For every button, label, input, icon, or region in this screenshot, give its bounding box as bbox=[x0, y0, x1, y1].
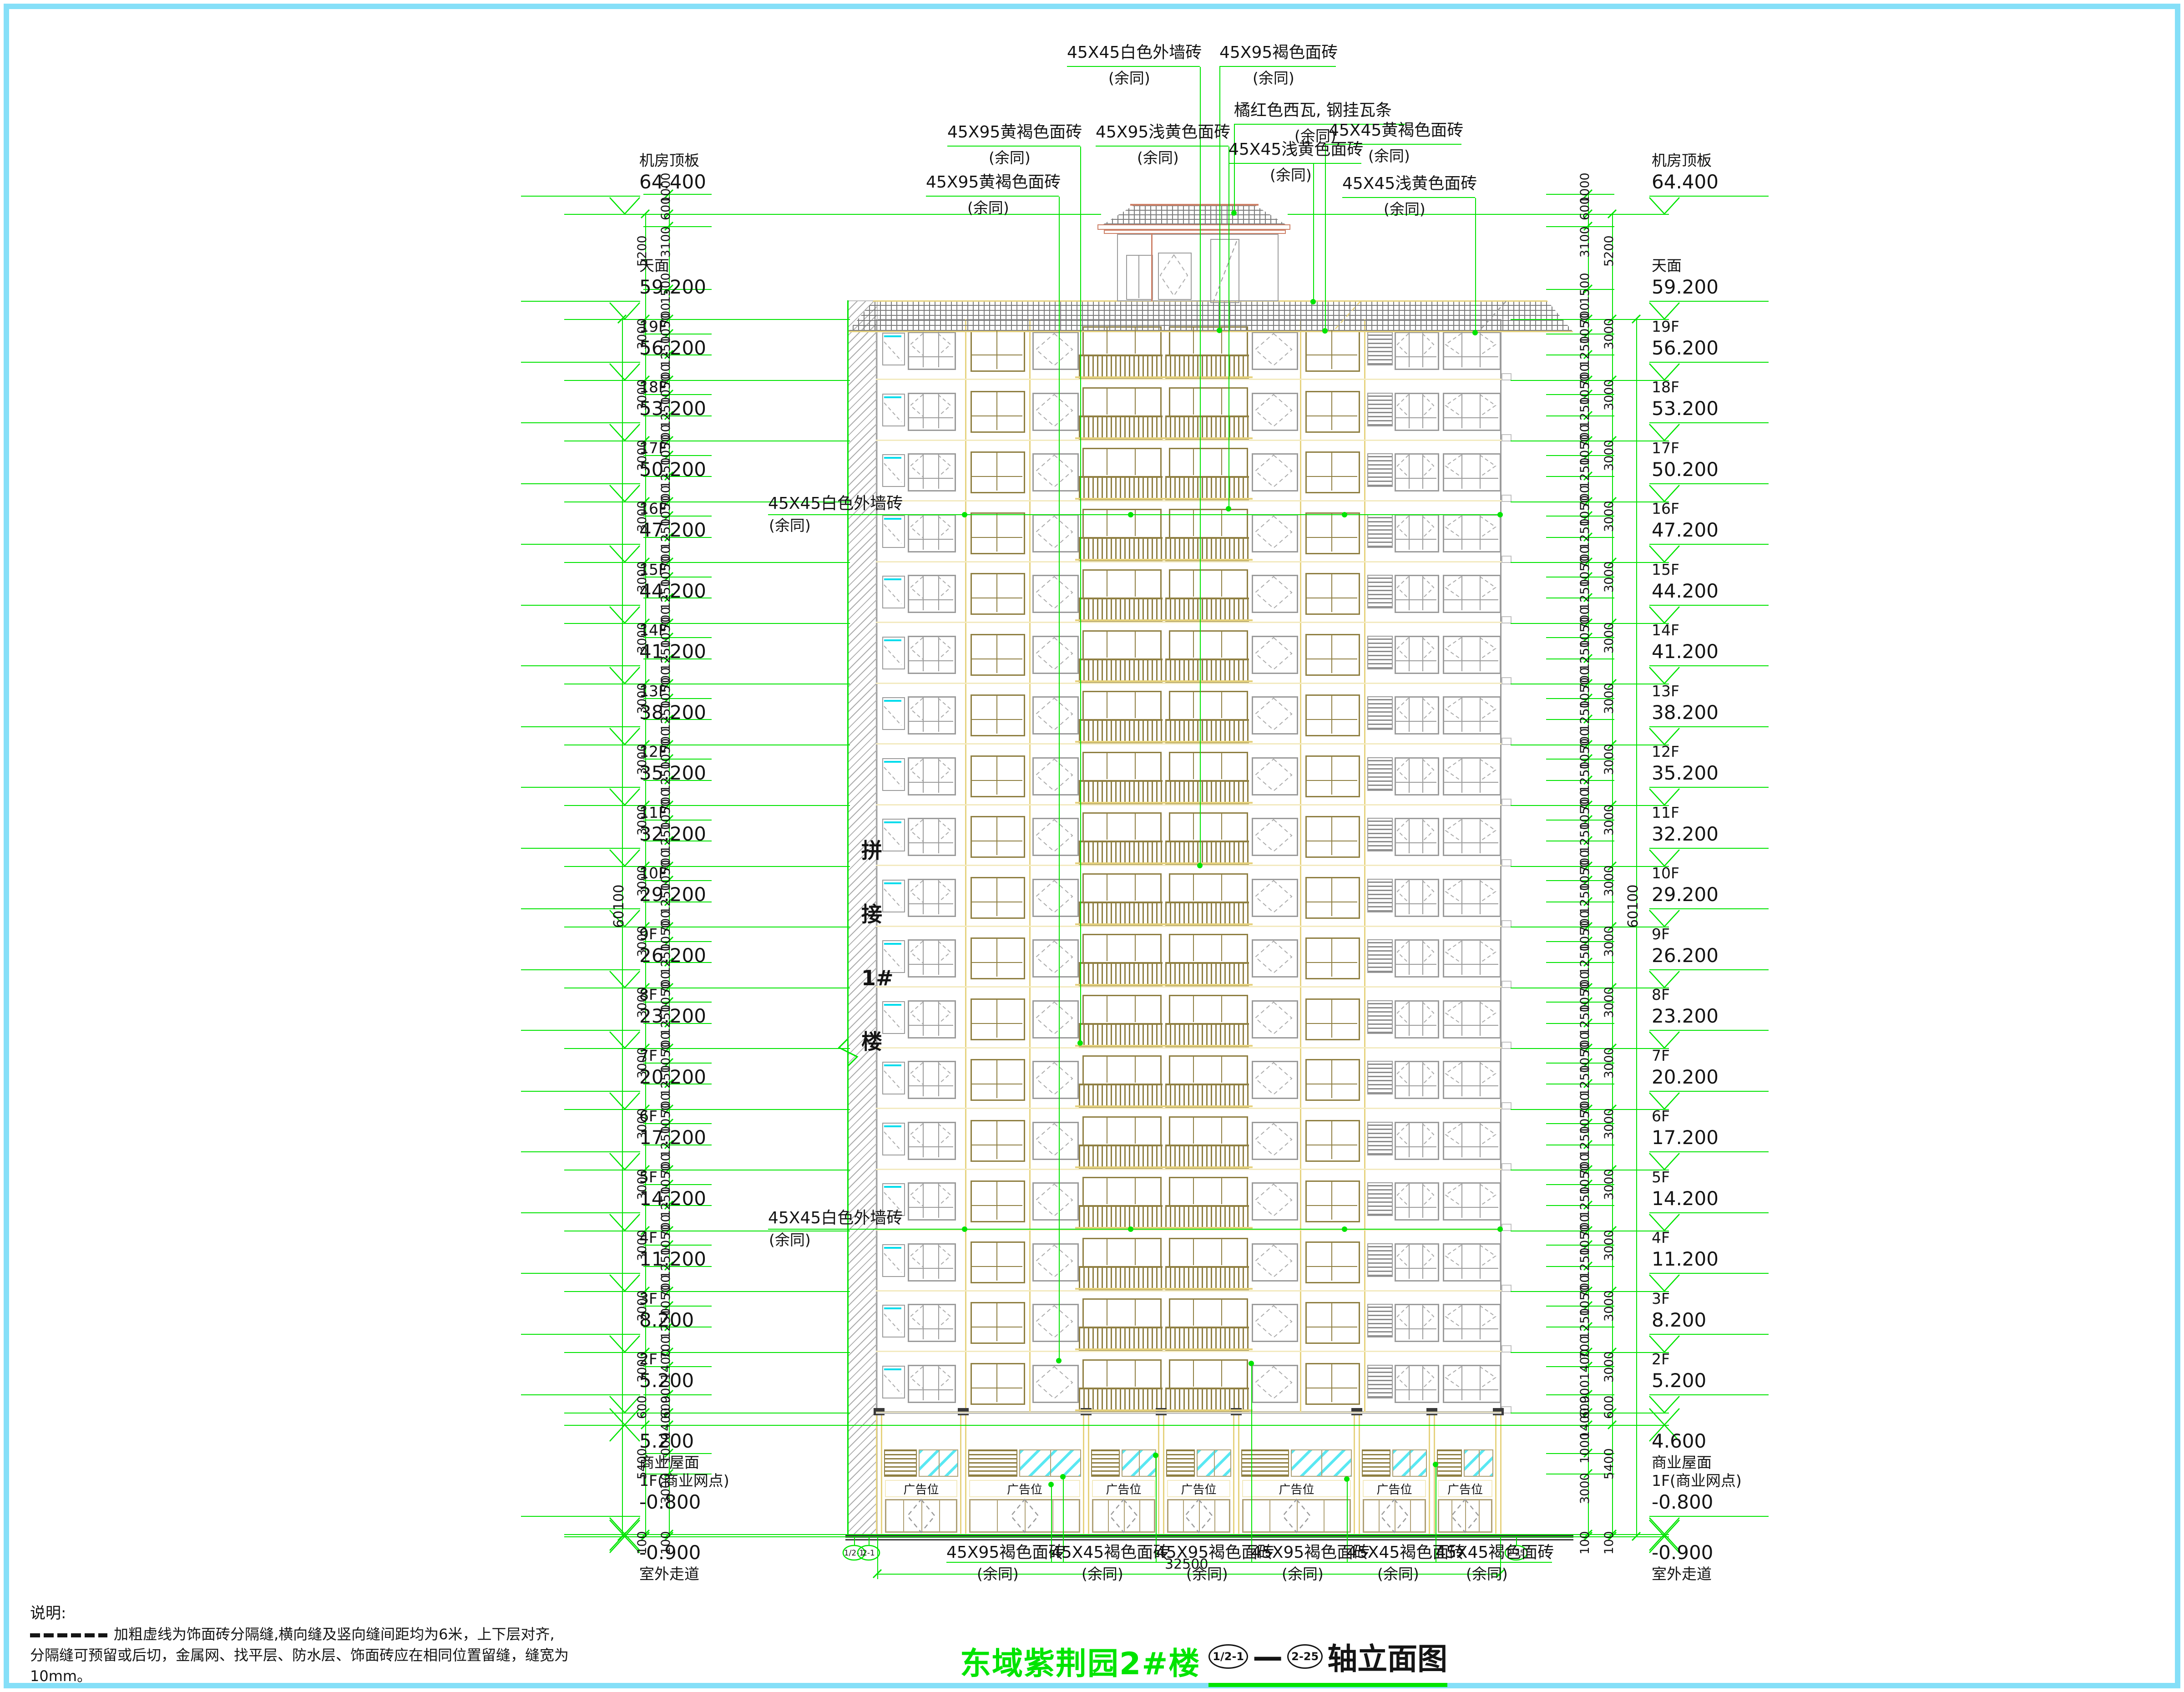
window-3pane bbox=[1443, 1304, 1501, 1342]
window-rail bbox=[971, 902, 1022, 902]
level-line bbox=[564, 214, 1101, 215]
window-olive bbox=[971, 694, 1025, 736]
window-mullion bbox=[1135, 934, 1136, 961]
door-mullion bbox=[1269, 1499, 1270, 1533]
ground-line-thin bbox=[845, 1539, 1573, 1540]
window-diamond bbox=[1252, 1304, 1298, 1342]
window-3pane bbox=[1443, 818, 1501, 856]
level-underline-left bbox=[521, 1516, 640, 1517]
window-mullion bbox=[1409, 1122, 1410, 1157]
penthouse-window-diamond bbox=[1158, 253, 1192, 300]
window-glass-line bbox=[884, 882, 901, 884]
window-mullion bbox=[1422, 1061, 1423, 1096]
window-diamond bbox=[1252, 332, 1298, 370]
balcony-slab bbox=[1162, 559, 1253, 561]
window-mullion bbox=[1193, 1055, 1194, 1083]
window-mullion bbox=[996, 391, 997, 430]
window-rail bbox=[1395, 1085, 1436, 1086]
window-mullion bbox=[1135, 1177, 1136, 1204]
window-glass-line bbox=[884, 761, 901, 763]
window-3pane bbox=[1395, 332, 1439, 370]
facade-ledge bbox=[1501, 434, 1512, 441]
door-mullion bbox=[903, 1499, 904, 1533]
window-mullion bbox=[1193, 630, 1194, 658]
window-rail bbox=[971, 1327, 1022, 1327]
balcony-railing bbox=[1079, 355, 1163, 380]
window-mullion bbox=[1107, 448, 1107, 475]
level-underline-right bbox=[1649, 1151, 1769, 1152]
window-olive bbox=[1305, 998, 1360, 1040]
window-mullion bbox=[1461, 818, 1462, 853]
window-olive bbox=[971, 937, 1025, 979]
window-mullion bbox=[1409, 514, 1410, 550]
window-small bbox=[882, 758, 905, 791]
window-3pane bbox=[1395, 453, 1439, 491]
balcony-slab bbox=[1162, 1288, 1253, 1290]
door-mullion bbox=[1451, 1499, 1452, 1533]
window-mullion bbox=[1221, 1055, 1222, 1083]
window-3pane bbox=[1443, 1243, 1501, 1282]
annotation-underline bbox=[946, 1562, 1063, 1563]
window-mullion bbox=[923, 453, 924, 489]
window-mullion bbox=[1135, 1359, 1136, 1387]
window-mullion bbox=[1480, 879, 1481, 914]
window-mullion bbox=[1461, 1182, 1462, 1218]
window-mullion bbox=[1221, 873, 1222, 901]
level-underline-right bbox=[1649, 848, 1769, 849]
door-mullion bbox=[1465, 1499, 1466, 1533]
window-rail bbox=[971, 1266, 1022, 1267]
window-mullion bbox=[1409, 1365, 1410, 1400]
window-3pane bbox=[1395, 1365, 1439, 1403]
window-rail bbox=[908, 1268, 953, 1269]
window-rail bbox=[1443, 1146, 1498, 1147]
window-mullion bbox=[1107, 812, 1107, 840]
balcony-window bbox=[1082, 630, 1162, 660]
shop-pilaster bbox=[876, 1413, 882, 1534]
annotation-leader bbox=[1059, 197, 1060, 1361]
window-olive bbox=[1305, 1180, 1360, 1222]
window-mullion bbox=[996, 634, 997, 673]
window-mullion bbox=[938, 818, 939, 853]
window-3pane bbox=[908, 1304, 956, 1342]
balcony-window bbox=[1082, 1359, 1162, 1389]
notes-heading: 说明: bbox=[30, 1603, 569, 1624]
window-mullion bbox=[1135, 1116, 1136, 1144]
louver-vent bbox=[1367, 879, 1393, 912]
window-olive bbox=[1305, 1302, 1360, 1344]
balcony-railing bbox=[1079, 1327, 1163, 1352]
level-line-full bbox=[564, 1534, 1669, 1535]
door-mullion bbox=[921, 1499, 922, 1533]
window-mullion bbox=[1422, 879, 1423, 914]
window-3pane bbox=[1443, 575, 1501, 613]
window-mullion bbox=[1193, 1298, 1194, 1326]
balcony-railing bbox=[1165, 962, 1249, 987]
level-line-full bbox=[564, 1536, 1669, 1537]
balcony-window bbox=[1169, 1177, 1248, 1207]
window-mullion bbox=[923, 757, 924, 793]
window-mullion bbox=[923, 514, 924, 550]
facade-ledge bbox=[1501, 738, 1512, 745]
balcony-slab bbox=[1075, 498, 1166, 500]
elevation-drawing-canvas: 东域紫荆园2#楼 1/2-1 — 2-25 轴立面图 说明: 加粗虚线为饰面砖分… bbox=[0, 0, 2184, 1692]
balcony-slab bbox=[1162, 1409, 1253, 1411]
balcony-window bbox=[1169, 1298, 1248, 1328]
window-mullion bbox=[1107, 1116, 1107, 1144]
level-underline-right bbox=[1649, 301, 1769, 302]
window-glass-line bbox=[884, 821, 901, 823]
window-mullion bbox=[1135, 812, 1136, 840]
window-mullion bbox=[1409, 879, 1410, 914]
balcony-window bbox=[1082, 448, 1162, 478]
window-mullion bbox=[1331, 694, 1332, 734]
window-mullion bbox=[1221, 569, 1222, 597]
window-mullion bbox=[923, 1061, 924, 1096]
window-3pane bbox=[1395, 514, 1439, 552]
window-mullion bbox=[1193, 752, 1194, 779]
window-mullion bbox=[923, 575, 924, 610]
balcony-slab bbox=[1075, 1105, 1166, 1107]
facade-ledge bbox=[1501, 616, 1512, 623]
window-3pane bbox=[1443, 939, 1501, 978]
window-olive bbox=[971, 1180, 1025, 1222]
balcony-window bbox=[1169, 569, 1248, 599]
facade-ledge bbox=[1501, 799, 1512, 806]
level-underline-left bbox=[521, 605, 640, 606]
floor-slab-line bbox=[876, 683, 1501, 684]
window-mullion bbox=[1409, 818, 1410, 853]
balcony-slab bbox=[1075, 437, 1166, 439]
window-3pane bbox=[1443, 1000, 1501, 1039]
window-mullion bbox=[1193, 326, 1194, 354]
transom-mullion bbox=[1214, 1449, 1215, 1477]
window-rail bbox=[1305, 598, 1357, 598]
level-underline-right bbox=[1649, 726, 1769, 727]
window-mullion bbox=[1409, 636, 1410, 671]
window-mullion bbox=[938, 879, 939, 914]
window-small bbox=[882, 333, 905, 365]
balcony-railing bbox=[1165, 780, 1249, 805]
balcony-slab bbox=[1075, 741, 1166, 743]
window-mullion bbox=[938, 1000, 939, 1036]
window-3pane bbox=[908, 818, 956, 856]
window-3pane bbox=[1443, 1365, 1501, 1403]
window-diamond bbox=[1032, 1365, 1079, 1403]
window-glass-line bbox=[884, 1125, 901, 1127]
window-mullion bbox=[1193, 1359, 1194, 1387]
penthouse-frame-line bbox=[1151, 234, 1153, 301]
window-mullion bbox=[1135, 691, 1136, 718]
window-mullion bbox=[923, 1365, 924, 1400]
window-rail bbox=[1443, 1085, 1498, 1086]
floor-slab-line bbox=[876, 561, 1501, 562]
window-diamond bbox=[1252, 696, 1298, 735]
door-mullion bbox=[1395, 1499, 1395, 1533]
window-mullion bbox=[1409, 332, 1410, 367]
window-olive bbox=[1305, 937, 1360, 979]
title-axis-bubble-end: 2-25 bbox=[1287, 1644, 1323, 1669]
window-rail bbox=[1305, 780, 1357, 781]
window-rail bbox=[908, 964, 953, 965]
window-rail bbox=[1305, 1205, 1357, 1206]
shop-transom-louver bbox=[968, 1449, 1017, 1477]
window-olive bbox=[971, 877, 1025, 919]
level-underline-right bbox=[1649, 665, 1769, 666]
window-mullion bbox=[1422, 757, 1423, 793]
floor-slab-line bbox=[876, 500, 1501, 502]
level-underline-left bbox=[521, 1334, 640, 1335]
window-mullion bbox=[1480, 1000, 1481, 1036]
window-rail bbox=[1443, 1025, 1498, 1026]
louver-vent bbox=[1367, 696, 1393, 730]
window-mullion bbox=[1461, 757, 1462, 793]
balcony-slab bbox=[1162, 619, 1253, 621]
window-rail bbox=[971, 1145, 1022, 1145]
window-mullion bbox=[1107, 752, 1107, 779]
annotation-leader bbox=[1200, 67, 1201, 866]
level-underline-right bbox=[1649, 1030, 1769, 1031]
door-mullion bbox=[1139, 1499, 1140, 1533]
balcony-railing bbox=[1079, 962, 1163, 987]
shop-pilaster bbox=[1495, 1413, 1501, 1534]
window-rail bbox=[1305, 1388, 1357, 1388]
balcony-railing bbox=[1079, 415, 1163, 441]
balcony-slab bbox=[1162, 802, 1253, 804]
annotation-underline bbox=[1096, 146, 1228, 147]
window-mullion bbox=[1422, 514, 1423, 550]
louver-vent bbox=[1367, 636, 1393, 669]
window-rail bbox=[1443, 1207, 1498, 1208]
window-mullion bbox=[1135, 873, 1136, 901]
window-olive bbox=[971, 998, 1025, 1040]
balcony-railing bbox=[1165, 1023, 1249, 1048]
window-mullion bbox=[1331, 816, 1332, 855]
window-rail bbox=[1395, 660, 1436, 661]
shop-sign-label: 广告位 bbox=[903, 1480, 939, 1497]
window-mullion bbox=[938, 453, 939, 489]
window-rail bbox=[908, 599, 953, 600]
louver-vent bbox=[1367, 1000, 1393, 1034]
level-underline-right bbox=[1649, 483, 1769, 484]
window-mullion bbox=[1480, 636, 1481, 671]
axis-stem bbox=[854, 1536, 855, 1545]
window-mullion bbox=[1480, 939, 1481, 975]
window-mullion bbox=[1331, 1302, 1332, 1341]
window-small bbox=[882, 576, 905, 608]
window-mullion bbox=[1409, 453, 1410, 489]
shop-sign-box: 广告位 bbox=[1167, 1480, 1230, 1497]
window-3pane bbox=[908, 636, 956, 674]
level-underline-right bbox=[1649, 1091, 1769, 1092]
window-mullion bbox=[1193, 934, 1194, 961]
balcony-window bbox=[1169, 934, 1248, 964]
window-mullion bbox=[1480, 818, 1481, 853]
window-olive bbox=[1305, 1120, 1360, 1162]
window-3pane bbox=[1443, 514, 1501, 552]
balcony-slab bbox=[1075, 680, 1166, 682]
annotation-leader bbox=[1313, 164, 1314, 302]
balcony-railing bbox=[1165, 1327, 1249, 1352]
window-mullion bbox=[1221, 1359, 1222, 1387]
balcony-railing bbox=[1165, 902, 1249, 927]
window-mullion bbox=[1193, 387, 1194, 415]
balcony-window bbox=[1082, 995, 1162, 1025]
window-3pane bbox=[908, 1061, 956, 1099]
floor-slab-line bbox=[876, 1169, 1501, 1170]
shop-pilaster bbox=[960, 1413, 966, 1534]
window-rail bbox=[1395, 417, 1436, 418]
window-olive bbox=[971, 1302, 1025, 1344]
window-diamond bbox=[1252, 818, 1298, 856]
window-mullion bbox=[938, 1365, 939, 1400]
annotation-leader bbox=[1251, 1363, 1252, 1562]
balcony-slab bbox=[1075, 862, 1166, 864]
window-mullion bbox=[1221, 934, 1222, 961]
window-rail bbox=[1443, 1389, 1498, 1390]
annotation-underline bbox=[1067, 66, 1200, 67]
window-mullion bbox=[1480, 1304, 1481, 1339]
window-mullion bbox=[996, 1363, 997, 1402]
penthouse-window bbox=[1126, 255, 1153, 300]
annotation-underline bbox=[1051, 1562, 1168, 1563]
window-mullion bbox=[923, 879, 924, 914]
window-mullion bbox=[996, 755, 997, 795]
balcony-window bbox=[1082, 509, 1162, 539]
level-line-left bbox=[564, 1413, 850, 1413]
notes-line-2: 分隔缝可预留或后切，金属网、找平层、防水层、饰面砖应在相同位置留缝，缝宽为 bbox=[30, 1645, 569, 1666]
window-mullion bbox=[1409, 1304, 1410, 1339]
window-mullion bbox=[1193, 569, 1194, 597]
balcony-window bbox=[1082, 752, 1162, 782]
window-3pane bbox=[908, 1243, 956, 1282]
level-underline-left bbox=[521, 483, 640, 484]
window-3pane bbox=[1443, 879, 1501, 917]
window-mullion bbox=[996, 937, 997, 977]
window-olive bbox=[1305, 1363, 1360, 1405]
window-olive bbox=[1305, 816, 1360, 858]
window-mullion bbox=[1193, 812, 1194, 840]
window-mullion bbox=[1422, 575, 1423, 610]
window-3pane bbox=[1443, 453, 1501, 491]
window-mullion bbox=[1221, 1298, 1222, 1326]
window-rail bbox=[971, 1084, 1022, 1084]
window-mullion bbox=[996, 816, 997, 855]
balcony-slab bbox=[1162, 923, 1253, 925]
window-mullion bbox=[1107, 934, 1107, 961]
floor-slab-line bbox=[876, 1290, 1501, 1292]
window-glass-line bbox=[884, 700, 901, 702]
window-olive bbox=[1305, 1059, 1360, 1101]
window-rail bbox=[908, 1207, 953, 1208]
window-diamond bbox=[1252, 453, 1298, 491]
window-mullion bbox=[923, 1000, 924, 1036]
window-olive bbox=[971, 1363, 1025, 1405]
level-underline-left bbox=[521, 1030, 640, 1031]
window-mullion bbox=[1480, 696, 1481, 732]
window-mullion bbox=[1461, 1243, 1462, 1279]
window-mullion bbox=[938, 514, 939, 550]
window-mullion bbox=[1221, 509, 1222, 536]
window-mullion bbox=[1422, 1243, 1423, 1279]
window-small bbox=[882, 1062, 905, 1094]
louver-vent bbox=[1367, 1304, 1393, 1337]
window-mullion bbox=[938, 1122, 939, 1157]
balcony-slab bbox=[1075, 1288, 1166, 1290]
louver-vent bbox=[1367, 1365, 1393, 1398]
balcony-window bbox=[1169, 1116, 1248, 1146]
window-mullion bbox=[1107, 995, 1107, 1022]
level-underline-left bbox=[521, 422, 640, 423]
window-3pane bbox=[1443, 393, 1501, 431]
window-small bbox=[882, 454, 905, 487]
level-underline-left bbox=[521, 196, 640, 197]
window-rail bbox=[1305, 841, 1357, 841]
window-mullion bbox=[1422, 818, 1423, 853]
level-underline-left bbox=[521, 665, 640, 666]
level-underline-right bbox=[1649, 605, 1769, 606]
door-mullion bbox=[1379, 1499, 1380, 1533]
window-mullion bbox=[1193, 1238, 1194, 1265]
shop-transom-louver bbox=[1362, 1449, 1390, 1477]
shop-pilaster bbox=[1429, 1413, 1435, 1534]
window-mullion bbox=[1135, 995, 1136, 1022]
balcony-railing bbox=[1165, 537, 1249, 562]
window-3pane bbox=[1395, 757, 1439, 795]
window-3pane bbox=[1443, 696, 1501, 735]
window-3pane bbox=[908, 332, 956, 370]
window-3pane bbox=[1395, 1304, 1439, 1342]
balcony-window bbox=[1082, 1116, 1162, 1146]
balcony-window bbox=[1169, 812, 1248, 842]
balcony-window bbox=[1082, 812, 1162, 842]
balcony-window bbox=[1169, 1359, 1248, 1389]
shop-transom-louver bbox=[884, 1449, 917, 1477]
door-mullion bbox=[1124, 1499, 1125, 1533]
balcony-railing bbox=[1079, 659, 1163, 684]
window-olive bbox=[1305, 512, 1360, 554]
window-mullion bbox=[1422, 1000, 1423, 1036]
window-rail bbox=[1443, 478, 1498, 479]
balcony-slab bbox=[1075, 1045, 1166, 1047]
window-mullion bbox=[1193, 995, 1194, 1022]
window-mullion bbox=[1193, 509, 1194, 536]
level-line-left bbox=[564, 623, 850, 624]
window-mullion bbox=[1107, 691, 1107, 718]
window-rail bbox=[971, 355, 1022, 355]
window-3pane bbox=[1395, 939, 1439, 978]
window-mullion bbox=[923, 1304, 924, 1339]
balcony-slab bbox=[1162, 984, 1253, 986]
window-3pane bbox=[1395, 879, 1439, 917]
window-mullion bbox=[1107, 509, 1107, 536]
balcony-window bbox=[1169, 630, 1248, 660]
louver-vent bbox=[1367, 757, 1393, 791]
window-mullion bbox=[938, 1304, 939, 1339]
window-rail bbox=[908, 1146, 953, 1147]
window-mullion bbox=[1107, 873, 1107, 901]
dim-ext-line bbox=[643, 226, 712, 227]
window-mullion bbox=[1461, 332, 1462, 367]
window-mullion bbox=[1461, 1365, 1462, 1400]
floor-slab-line bbox=[876, 440, 1501, 441]
window-mullion bbox=[1107, 1177, 1107, 1204]
window-mullion bbox=[1135, 509, 1136, 536]
window-mullion bbox=[1409, 1182, 1410, 1218]
door-mullion bbox=[1297, 1499, 1298, 1533]
window-rail bbox=[1305, 1023, 1357, 1024]
balcony-railing bbox=[1165, 476, 1249, 501]
